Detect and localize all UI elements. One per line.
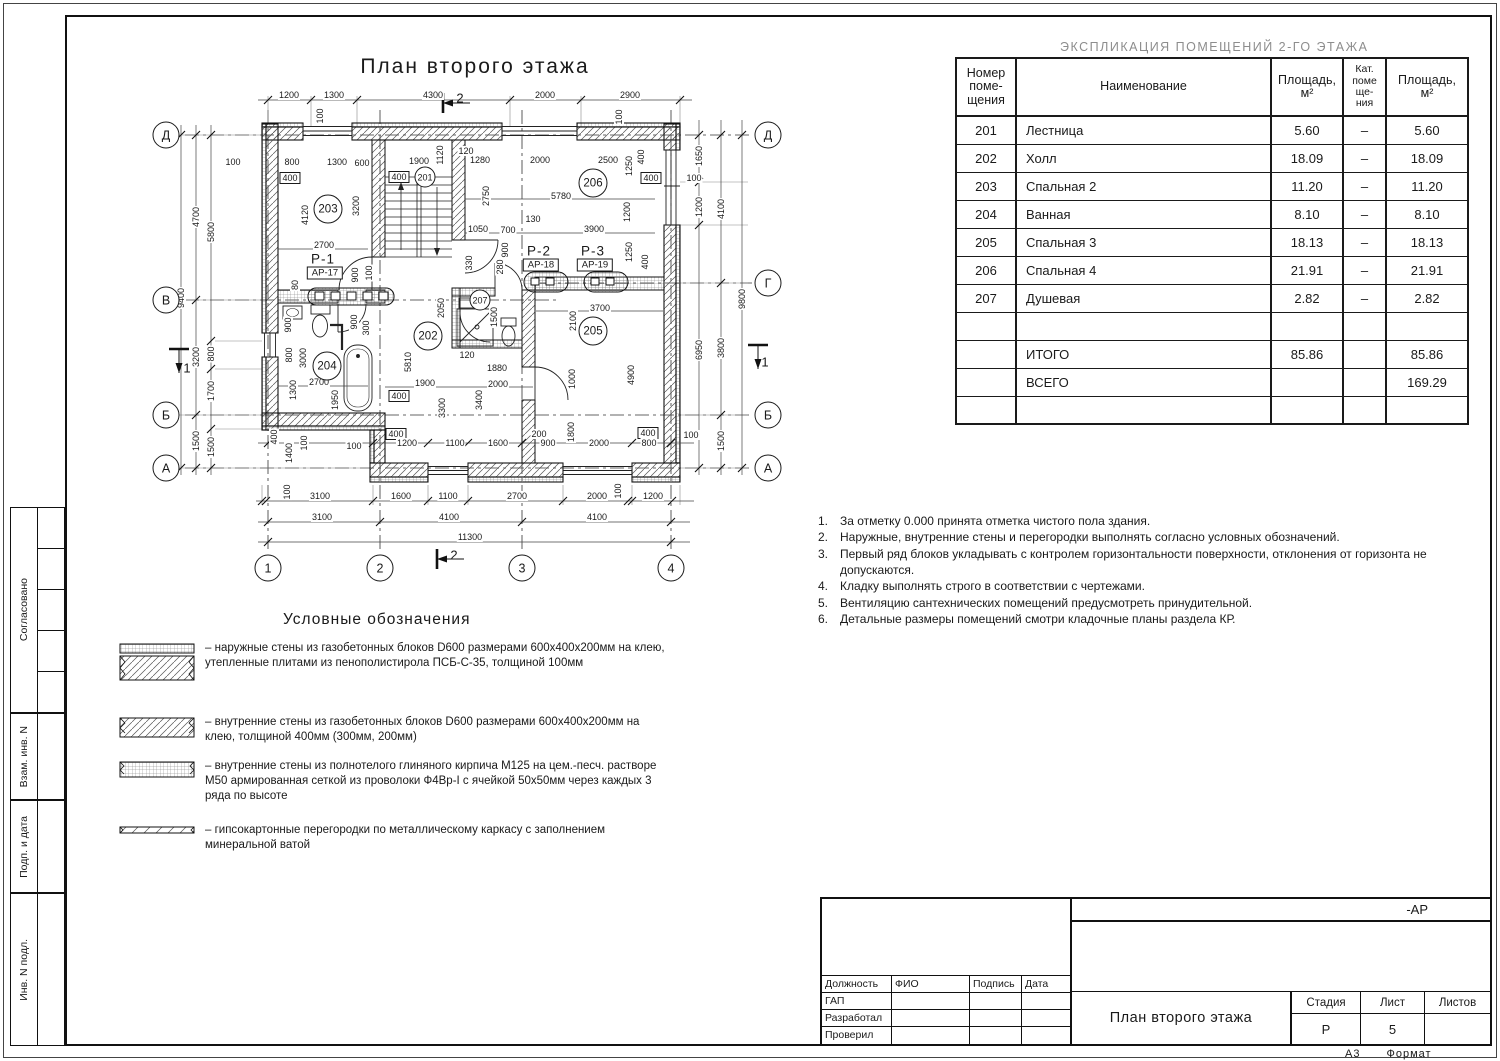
dimension-label: 400	[640, 253, 650, 270]
explication-col-header: Площадь, м²	[1271, 58, 1343, 116]
table-cell: 204	[956, 200, 1016, 228]
title-block-bottom: План второго этажа Стадия Лист Листов Р …	[1072, 992, 1490, 1044]
axis-bubble-Д: Д	[153, 122, 180, 149]
format-value: А3	[1345, 1048, 1360, 1060]
legend-item-gypsum-partition: – гипсокартонные перегородки по металлич…	[118, 823, 678, 853]
dimension-label: 2900	[619, 90, 641, 100]
dimension-label: 100	[224, 157, 241, 167]
dimension-label: 2700	[313, 240, 335, 250]
table-row	[956, 396, 1468, 424]
table-row	[956, 312, 1468, 340]
room-bubble-201: 201	[415, 167, 436, 188]
axis-bubble-2: 2	[367, 555, 394, 582]
table-cell	[1271, 368, 1343, 396]
table-cell: Спальная 4	[1016, 256, 1271, 284]
axis-bubble-Б: Б	[153, 402, 180, 429]
stage-sheet-cells: Стадия Лист Листов Р 5	[1292, 992, 1490, 1044]
dimension-label: 800	[640, 438, 657, 448]
dimension-label: 900	[350, 266, 360, 283]
dimension-label: 2700	[506, 491, 528, 501]
dimension-label: 2750	[481, 185, 491, 207]
section-ref: АР-18	[523, 259, 559, 272]
dimension-label: 1250	[624, 241, 634, 263]
room-bubble-206: 206	[579, 169, 608, 198]
dimension-label: 1600	[487, 438, 509, 448]
table-cell	[1016, 312, 1271, 340]
dimension-label: 3400	[474, 389, 484, 411]
table-cell	[956, 340, 1016, 368]
dimension-label: 5780	[550, 191, 572, 201]
explication-col-header: Площадь, м²	[1386, 58, 1468, 116]
col-header: Должность	[822, 976, 892, 992]
table-cell: 8.10	[1271, 200, 1343, 228]
legend-item-inner-block-wall: – внутренние стены из газобетонных блоко…	[118, 715, 678, 746]
table-cell: 85.86	[1386, 340, 1468, 368]
title-block-role-row: ГАП	[822, 993, 1070, 1010]
table-cell: –	[1343, 256, 1386, 284]
explication-header: Номер поме- щенияНаименованиеПлощадь, м²…	[956, 58, 1468, 116]
note-number: 3.	[818, 546, 840, 579]
title-block-signatures: Должность ФИО Подпись Дата ГАП Разработа…	[822, 899, 1072, 1044]
table-cell: 21.91	[1386, 256, 1468, 284]
explication-col-header: Номер поме- щения	[956, 58, 1016, 116]
dimension-label: 3700	[589, 303, 611, 313]
dimension-label: 100	[315, 107, 325, 124]
table-cell	[1386, 396, 1468, 424]
axis-bubble-А: А	[755, 455, 782, 482]
table-cell: –	[1343, 228, 1386, 256]
dimension-label: 800	[283, 157, 300, 167]
axis-bubble-3: 3	[509, 555, 536, 582]
axis-bubble-А: А	[153, 455, 180, 482]
dimension-label: 3300	[437, 397, 447, 419]
dimension-label: 1250	[624, 155, 634, 177]
table-cell: 5.60	[1386, 116, 1468, 144]
dimension-label: 900	[500, 241, 510, 258]
dimension-label: 2000	[586, 491, 608, 501]
col-header: Дата	[1022, 976, 1070, 992]
legend-item-text: – внутренние стены из газобетонных блоко…	[205, 715, 665, 746]
explication-col-header: Наименование	[1016, 58, 1271, 116]
explication-col-header: Кат. поме ще- ния	[1343, 58, 1386, 116]
table-cell: 202	[956, 144, 1016, 172]
legend-item-text: – гипсокартонные перегородки по металлич…	[205, 823, 665, 853]
document-code: -АР	[1072, 899, 1490, 922]
table-cell: 18.09	[1386, 144, 1468, 172]
table-cell: 5.60	[1271, 116, 1343, 144]
dimension-label: 100	[282, 483, 292, 500]
dimension-label: 100	[613, 482, 623, 499]
table-cell: 85.86	[1271, 340, 1343, 368]
note-item: 4.Кладку выполнять строго в соответствии…	[818, 578, 1458, 594]
axis-bubble-Г: Г	[755, 270, 782, 297]
dimension-label: 800	[206, 345, 216, 362]
format-label: Формат	[1386, 1048, 1431, 1060]
table-cell	[1343, 312, 1386, 340]
dimension-label: 400	[269, 428, 279, 445]
explication-table: Номер поме- щенияНаименованиеПлощадь, м²…	[955, 57, 1469, 425]
table-cell: 18.09	[1271, 144, 1343, 172]
table-cell: 207	[956, 284, 1016, 312]
axis-bubble-В: В	[153, 287, 180, 314]
dimension-label: 400	[636, 148, 646, 165]
room-bubble-205: 205	[579, 317, 608, 346]
note-text: Первый ряд блоков укладывать с контролем…	[840, 546, 1440, 579]
dimension-label: 1500	[716, 430, 726, 452]
stamp-approved-label: Согласовано	[11, 508, 38, 712]
legend-item-text: – наружные стены из газобетонных блоков …	[205, 641, 665, 692]
note-item: 1.За отметку 0.000 принята отметка чисто…	[818, 513, 1458, 529]
dimension-label: 280	[495, 258, 505, 275]
dimension-label: 900	[283, 316, 293, 333]
stamp-podp-data: Подп. и дата	[10, 800, 65, 893]
dimension-label: 2000	[487, 379, 509, 389]
section-ref: АР-17	[307, 267, 343, 280]
dimension-label: 2100	[568, 310, 578, 332]
legend-title: Условные обозначения	[283, 611, 470, 629]
note-number: 1.	[818, 513, 840, 529]
dimension-label: 1300	[323, 90, 345, 100]
table-row: 206Спальная 421.91–21.91	[956, 256, 1468, 284]
dimension-label: 1200	[694, 196, 704, 218]
title-block-role-row: Проверил	[822, 1027, 1070, 1044]
dimension-label: 3800	[716, 337, 726, 359]
table-cell: –	[1343, 144, 1386, 172]
dimension-label: 1300	[326, 157, 348, 167]
dimension-label: 11300	[457, 532, 483, 542]
dimension-label: 1280	[469, 155, 491, 165]
note-number: 6.	[818, 611, 840, 627]
table-cell	[1343, 368, 1386, 396]
dimension-label: 400	[640, 172, 661, 184]
dimension-label: 1000	[567, 368, 577, 390]
inner-block-wall-hatch-symbol	[118, 715, 205, 746]
stamp-approved-rows	[38, 508, 64, 712]
dimension-label: 1400	[284, 442, 294, 464]
dimension-label: 600	[353, 158, 370, 168]
room-bubble-202: 202	[414, 322, 443, 351]
table-row: 207Душевая2.82–2.82	[956, 284, 1468, 312]
plan-title: План второго этажа	[360, 55, 589, 79]
table-cell: 11.20	[1386, 172, 1468, 200]
section-label: Р-1	[309, 252, 337, 267]
table-cell: 205	[956, 228, 1016, 256]
dimension-label: 1050	[467, 224, 489, 234]
table-cell: 2.82	[1386, 284, 1468, 312]
note-item: 5.Вентиляцию сантехнических помещений пр…	[818, 595, 1458, 611]
dimension-label: 330	[464, 254, 474, 271]
dimension-label: 1500	[191, 430, 201, 452]
table-cell	[956, 312, 1016, 340]
dimension-label: 6950	[694, 339, 704, 361]
drawing-sheet: 1200130043002000290094004700320015005800…	[0, 0, 1500, 1061]
dimension-label: 4100	[438, 512, 460, 522]
note-number: 5.	[818, 595, 840, 611]
dimension-label: 1500	[489, 306, 499, 328]
table-cell: 8.10	[1386, 200, 1468, 228]
dimension-label: 5800	[206, 221, 216, 243]
dimension-label: 1100	[444, 438, 465, 448]
axis-bubble-1: 1	[255, 555, 282, 582]
col-header: ФИО	[892, 976, 970, 992]
table-cell	[956, 368, 1016, 396]
table-row: ИТОГО85.8685.86	[956, 340, 1468, 368]
title-block-role-row: Разработал	[822, 1010, 1070, 1027]
cut-mark-label: 2	[450, 548, 457, 563]
table-cell: 21.91	[1271, 256, 1343, 284]
table-cell: 11.20	[1271, 172, 1343, 200]
table-cell	[1016, 396, 1271, 424]
dimension-label: 4300	[422, 90, 444, 100]
table-cell	[1343, 396, 1386, 424]
cut-mark-label: 1	[761, 355, 768, 370]
section-label: Р-3	[579, 244, 607, 259]
dimension-label: 3000	[298, 347, 308, 369]
dimension-label: 5810	[403, 351, 413, 373]
room-bubble-203: 203	[314, 195, 343, 224]
room-bubble-204: 204	[313, 352, 342, 381]
title-block: Должность ФИО Подпись Дата ГАП Разработа…	[820, 897, 1492, 1046]
cut-mark-label: 1	[183, 361, 190, 376]
dimension-label: 3100	[311, 512, 333, 522]
title-block-main: -АР План второго этажа Стадия Лист Листо…	[1072, 899, 1490, 1044]
dimension-label: 3200	[191, 346, 201, 368]
dimension-label: 1100	[437, 491, 458, 501]
dimension-label: 1900	[414, 378, 436, 388]
table-row: 203Спальная 211.20–11.20	[956, 172, 1468, 200]
role-label: ГАП	[822, 993, 892, 1009]
dimension-label: 1900	[408, 156, 430, 166]
dimension-label: 400	[279, 172, 300, 184]
dimension-label: 1200	[622, 201, 632, 223]
dimension-label: 2000	[534, 90, 556, 100]
dimension-label: 700	[499, 225, 516, 235]
role-label: Проверил	[822, 1027, 892, 1044]
dimension-label: 2500	[597, 155, 619, 165]
dimension-label: 100	[682, 430, 699, 440]
cut-mark-label: 2	[456, 91, 463, 106]
dimension-label: 1200	[278, 90, 300, 100]
table-cell: 206	[956, 256, 1016, 284]
table-cell: Холл	[1016, 144, 1271, 172]
dimension-label: 1650	[694, 145, 704, 167]
dimension-label: 1500	[206, 436, 216, 458]
note-number: 4.	[818, 578, 840, 594]
dimension-label: 800	[284, 346, 294, 363]
legend-item-outer-wall: – наружные стены из газобетонных блоков …	[118, 641, 678, 692]
dimension-label: 4100	[586, 512, 608, 522]
table-cell: 2.82	[1271, 284, 1343, 312]
table-cell	[1386, 312, 1468, 340]
dimension-label: 1880	[486, 363, 508, 373]
dimension-label: 100	[364, 264, 374, 281]
note-text: Кладку выполнять строго в соответствии с…	[840, 578, 1440, 594]
table-cell: Спальная 2	[1016, 172, 1271, 200]
table-cell	[1271, 312, 1343, 340]
sheets-value	[1425, 1014, 1490, 1044]
dimension-label: 3200	[351, 195, 361, 217]
dimension-label: 400	[388, 171, 409, 183]
dimension-label: 1300	[288, 379, 298, 401]
table-cell: Спальная 3	[1016, 228, 1271, 256]
axis-bubble-4: 4	[658, 555, 685, 582]
stamp-inv-podl: Инв. N подл.	[10, 893, 65, 1046]
table-cell	[1271, 396, 1343, 424]
note-item: 2.Наружные, внутренние стены и перегород…	[818, 529, 1458, 545]
stamp-approved: Согласовано	[10, 507, 65, 713]
table-cell: –	[1343, 116, 1386, 144]
dimension-label: 1200	[642, 491, 664, 501]
table-row: 205Спальная 318.13–18.13	[956, 228, 1468, 256]
dimension-label: 900	[349, 313, 359, 330]
table-cell: ИТОГО	[1016, 340, 1271, 368]
dimension-label: 130	[524, 214, 541, 224]
dimension-label: 1800	[566, 421, 576, 443]
legend-item-text: – внутренние стены из полнотелого глинян…	[205, 759, 665, 804]
dimension-label: 9800	[737, 288, 747, 310]
dimension-label: 900	[539, 438, 556, 448]
table-cell: ВСЕГО	[1016, 368, 1271, 396]
table-cell: –	[1343, 200, 1386, 228]
table-cell: Лестница	[1016, 116, 1271, 144]
dimension-label: 4700	[191, 206, 201, 228]
brick-wall-hatch-symbol	[118, 759, 205, 804]
note-item: 3.Первый ряд блоков укладывать с контрол…	[818, 546, 1458, 579]
format-note: А3Формат	[1345, 1048, 1458, 1060]
table-row: 201Лестница5.60–5.60	[956, 116, 1468, 144]
dimension-label: 3100	[309, 491, 331, 501]
table-cell: –	[1343, 284, 1386, 312]
stage-header: Стадия	[1292, 992, 1361, 1013]
dimension-label: 4120	[300, 204, 310, 226]
table-cell: 169.29	[1386, 368, 1468, 396]
note-text: Вентиляцию сантехнических помещений пред…	[840, 595, 1440, 611]
stamp-vzam-inv: Взам. инв. N	[10, 713, 65, 800]
dimension-label: 2000	[529, 155, 551, 165]
note-text: Детальные размеры помещений смотри кладо…	[840, 611, 1440, 627]
dimension-label: 100	[614, 108, 624, 125]
stage-value: Р	[1292, 1014, 1361, 1044]
dimension-label: 300	[361, 319, 371, 336]
role-label: Разработал	[822, 1010, 892, 1026]
table-cell	[956, 396, 1016, 424]
sheet-value: 5	[1361, 1014, 1425, 1044]
section-ref: АР-19	[577, 259, 613, 272]
dimension-label: 400	[388, 390, 409, 402]
dimension-label: 4100	[716, 198, 726, 220]
table-row: ВСЕГО169.29	[956, 368, 1468, 396]
dimension-label: 100	[685, 173, 702, 183]
dimension-label: 1600	[390, 491, 412, 501]
note-number: 2.	[818, 529, 840, 545]
dimension-label: 4900	[626, 364, 636, 386]
dimension-label: 3900	[583, 224, 605, 234]
table-row: 204Ванная8.10–8.10	[956, 200, 1468, 228]
sheet-header: Лист	[1361, 992, 1425, 1013]
col-header: Подпись	[970, 976, 1022, 992]
title-block-header-row: Должность ФИО Подпись Дата	[822, 976, 1070, 993]
dimension-label: 2000	[588, 438, 610, 448]
dimension-label: 1120	[435, 144, 445, 165]
table-cell: 203	[956, 172, 1016, 200]
note-text: За отметку 0.000 принята отметка чистого…	[840, 513, 1440, 529]
gypsum-partition-symbol	[118, 823, 205, 853]
dimension-label: 1700	[206, 380, 216, 402]
sheet-title: План второго этажа	[1072, 992, 1292, 1044]
room-bubble-207: 207	[470, 290, 491, 311]
axis-bubble-Б: Б	[755, 402, 782, 429]
dimension-label: 1950	[330, 389, 340, 411]
general-notes: 1.За отметку 0.000 принята отметка чисто…	[818, 513, 1458, 627]
legend-item-brick-wall: – внутренние стены из полнотелого глинян…	[118, 759, 678, 804]
table-row: 202Холл18.09–18.09	[956, 144, 1468, 172]
note-item: 6.Детальные размеры помещений смотри кла…	[818, 611, 1458, 627]
table-cell: Ванная	[1016, 200, 1271, 228]
explication-title: ЭКСПЛИКАЦИЯ ПОМЕЩЕНИЙ 2-ГО ЭТАЖА	[1060, 40, 1368, 54]
axis-bubble-Д: Д	[755, 122, 782, 149]
title-block-empty-area	[1072, 922, 1490, 992]
outer-wall-hatch-symbol	[118, 641, 205, 692]
dimension-label: 2050	[436, 297, 446, 319]
explication-table-wrap: Номер поме- щенияНаименованиеПлощадь, м²…	[955, 57, 1469, 425]
dimension-label: 1200	[396, 438, 418, 448]
dimension-label: 100	[299, 434, 309, 451]
note-text: Наружные, внутренние стены и перегородки…	[840, 529, 1440, 545]
table-cell: 18.13	[1386, 228, 1468, 256]
dimension-label: 80	[290, 279, 300, 291]
dimension-label: 120	[458, 350, 475, 360]
table-cell: –	[1343, 172, 1386, 200]
section-label: Р-2	[525, 244, 553, 259]
table-cell: 18.13	[1271, 228, 1343, 256]
table-cell: 201	[956, 116, 1016, 144]
title-block-empty-cell	[822, 899, 1070, 976]
table-cell: Душевая	[1016, 284, 1271, 312]
sheets-header: Листов	[1425, 992, 1490, 1013]
table-cell	[1343, 340, 1386, 368]
dimension-label: 100	[345, 441, 362, 451]
